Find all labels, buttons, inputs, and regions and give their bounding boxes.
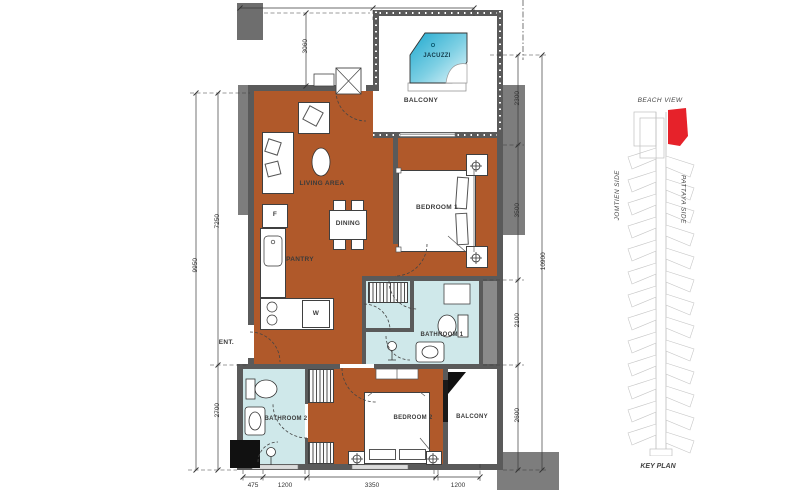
dim-3060: 3060 — [303, 28, 310, 64]
balcony-bottom-label: BALCONY — [446, 414, 498, 420]
dim-7250: 7250 — [215, 203, 222, 239]
dim-1200b: 1200 — [437, 483, 479, 490]
lamp-icon — [351, 453, 363, 465]
dim-2300: 2300 — [515, 80, 522, 116]
dim-2600: 2600 — [515, 397, 522, 433]
tower-base — [650, 449, 672, 456]
lamp-icon — [427, 453, 439, 465]
tower-unit-right — [666, 248, 694, 269]
pattaya-side-label: PATTAYA SIDE — [679, 167, 686, 231]
dim-9950: 9950 — [193, 247, 200, 283]
door-swings — [250, 91, 427, 462]
dim-3350: 3350 — [330, 483, 414, 490]
lamp-icon — [470, 252, 482, 264]
dim-2100: 2100 — [515, 302, 522, 338]
living-area-label: LIVING AREA — [290, 181, 354, 188]
ac-unit-icon — [336, 68, 361, 94]
bathroom1-duct — [444, 284, 470, 304]
tower-unit-left — [628, 263, 656, 284]
tower-unit-right — [666, 432, 694, 453]
beach-view-label: BEACH VIEW — [616, 98, 704, 105]
tower-top-block — [634, 112, 656, 146]
tower-unit-right — [666, 271, 694, 292]
dim-10900: 10900 — [541, 241, 548, 281]
tower-unit-right — [666, 294, 694, 315]
dim-3500: 3500 — [515, 192, 522, 228]
keyplan-title: KEY PLAN — [620, 463, 696, 470]
sink-bathroom1 — [416, 342, 444, 362]
dim-top-right: 2700 — [402, 0, 438, 1]
tower-unit-right — [666, 363, 694, 384]
dim-1200a: 1200 — [264, 483, 306, 490]
tower-unit-left — [628, 286, 656, 307]
bedroom1-label: BEDROOM 1 — [404, 205, 470, 212]
dim-2700: 2700 — [215, 392, 222, 428]
tower-unit-left — [628, 171, 656, 192]
dim-top-left: 2850 — [284, 0, 320, 1]
entrance-label: ENT. — [202, 340, 234, 347]
fridge-label: F — [262, 212, 288, 219]
bedroom2-label: BEDROOM 2 — [382, 415, 444, 421]
balcony-top-label: BALCONY — [394, 98, 448, 105]
jacuzzi-tub — [408, 33, 467, 91]
coffee-table — [312, 148, 330, 176]
bathroom1-label: BATHROOM 1 — [410, 332, 474, 338]
tower-unit-left — [628, 401, 656, 422]
pantry-label: PANTRY — [274, 257, 326, 264]
tower-unit-left — [628, 378, 656, 399]
lamp-icon — [470, 160, 482, 172]
tower-unit-left — [628, 194, 656, 215]
kitchen-details — [264, 236, 282, 325]
balcony-step — [314, 74, 334, 86]
highlighted-unit — [668, 108, 688, 146]
tower-unit-right — [666, 409, 694, 430]
tower-unit-right — [666, 340, 694, 361]
tower-unit-left — [628, 424, 656, 445]
tower-unit-left — [628, 240, 656, 261]
tower-unit-left — [628, 309, 656, 330]
dining-label: DINING — [328, 221, 368, 228]
shaft-black — [230, 440, 260, 468]
shower-head-bathroom2 — [267, 448, 276, 466]
tower-unit-left — [628, 148, 656, 169]
toilet-bathroom2 — [246, 379, 277, 399]
tower-unit-right — [666, 386, 694, 407]
balcony2-corner-mark — [448, 372, 466, 394]
extension-lines — [188, 8, 548, 481]
keyplan-tower — [606, 104, 710, 456]
jacuzzi-label: JACUZZI — [412, 53, 462, 59]
tower-unit-right — [666, 317, 694, 338]
jomtien-side-label: JOMTIEN SIDE — [615, 163, 622, 227]
tower-spine — [656, 112, 666, 449]
shower-head-bathroom1 — [388, 342, 397, 361]
tower-unit-left — [628, 355, 656, 376]
washer-label: W — [302, 311, 330, 318]
tower-unit-left — [628, 332, 656, 353]
bathroom2-label: BATHROOM 2 — [258, 416, 314, 422]
tower-unit-left — [628, 217, 656, 238]
floorplan-canvas: LIVING AREA DINING PANTRY ENT. BEDROOM 1… — [0, 0, 800, 500]
